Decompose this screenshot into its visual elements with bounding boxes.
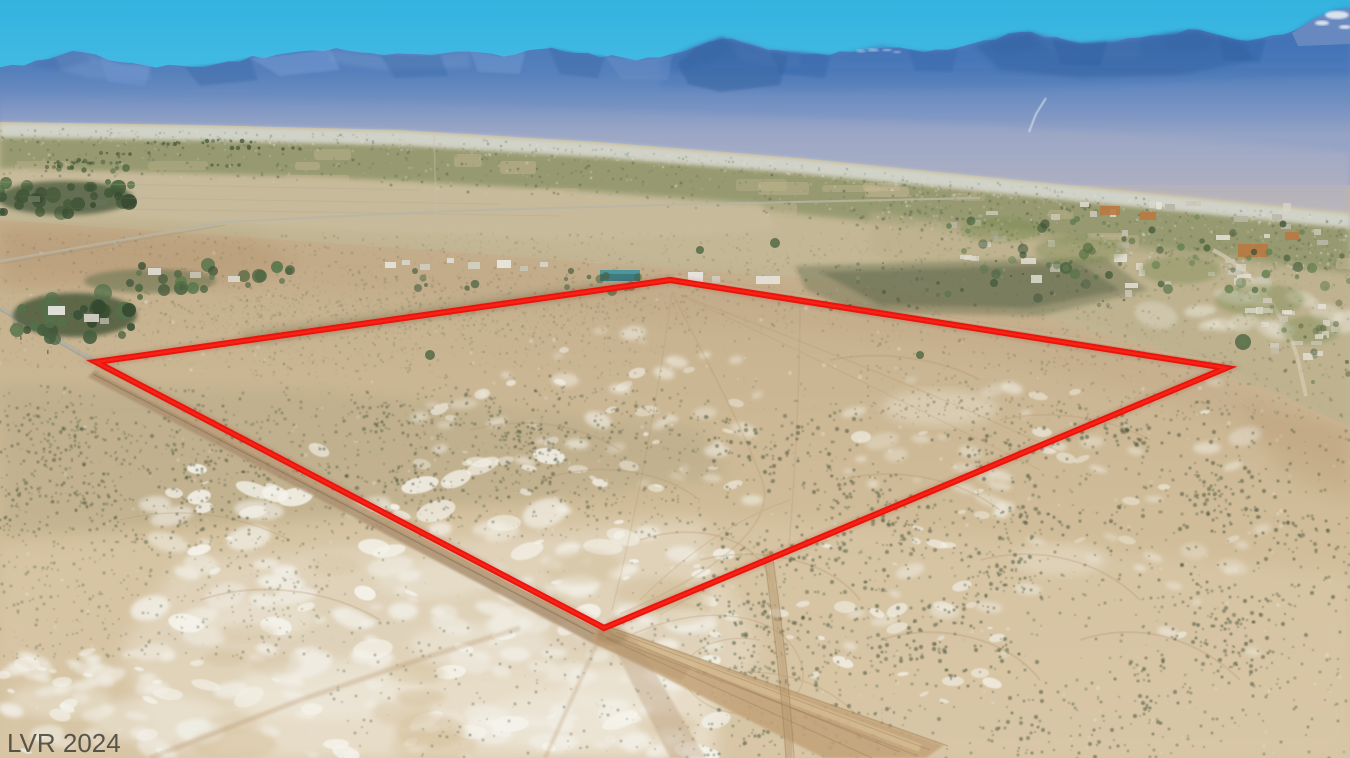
svg-text:LVR 2024: LVR 2024 (7, 728, 121, 758)
